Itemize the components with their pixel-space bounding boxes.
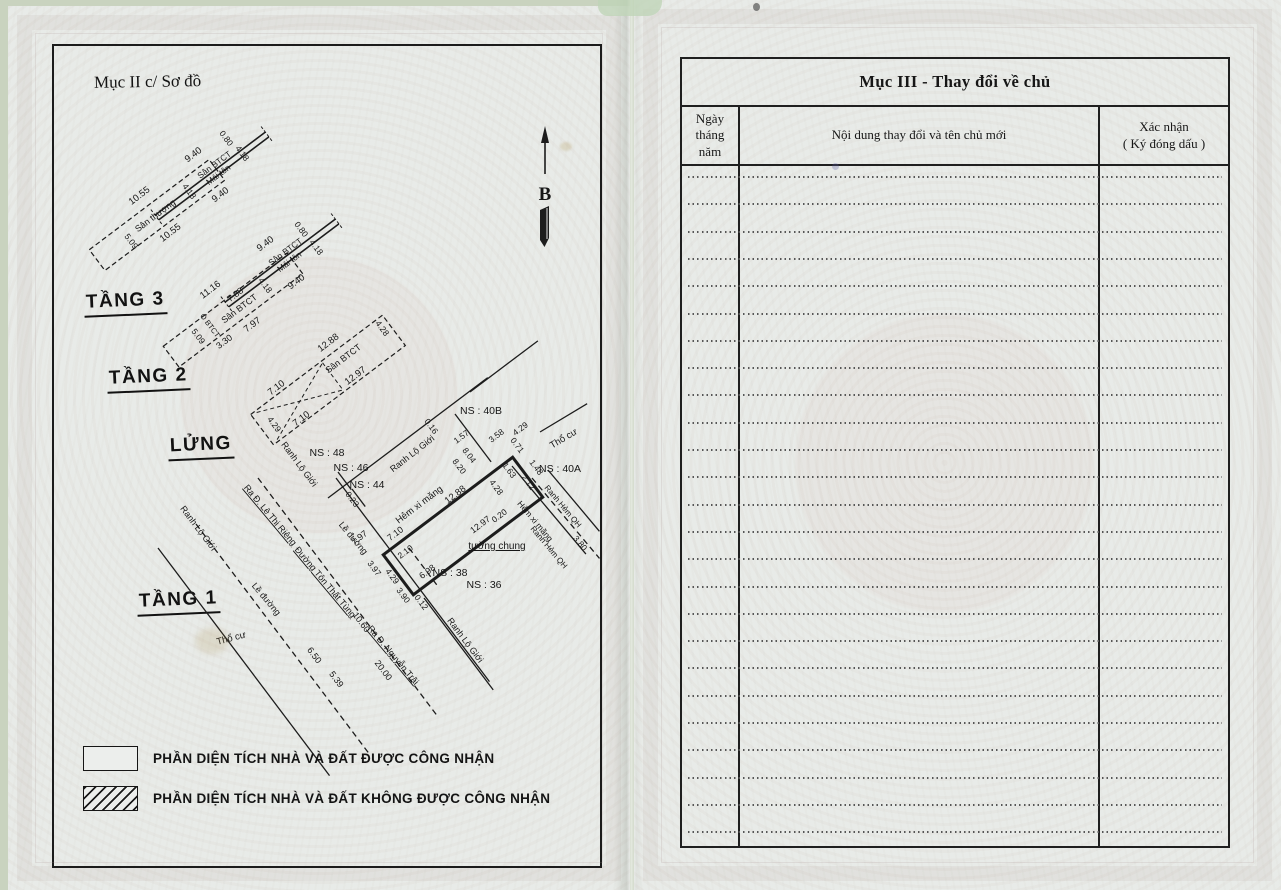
measurement-label: 4.29 (383, 567, 401, 586)
column-separator (738, 166, 740, 846)
measurement-label: 5.39 (327, 669, 346, 689)
dotted-entry-line (688, 722, 1222, 724)
measurement-label: 3.80 (571, 534, 589, 553)
dotted-entry-line (688, 203, 1222, 205)
owner-change-table: Mục III - Thay đổi về chủ Ngày tháng năm… (680, 57, 1230, 848)
measurement-label: 9.40 (286, 272, 307, 292)
measurement-label: 4.28 (487, 478, 505, 497)
page-right-owner-changes: Mục III - Thay đổi về chủ Ngày tháng năm… (634, 0, 1281, 890)
feature-label: Ranh Hẻm QH (543, 483, 584, 529)
measurement-label: 3.58 (487, 426, 506, 444)
cement-alley-line (532, 478, 599, 558)
dotted-entry-line (688, 340, 1222, 342)
measurement-label: 12.97 (468, 514, 492, 536)
measurement-label: 11.16 (198, 279, 223, 302)
dotted-entry-line (688, 176, 1222, 178)
dotted-entry-line (688, 804, 1222, 806)
feature-label: Ra Đ. Nguyễn Trãi (366, 624, 421, 687)
measurement-label: 7.97 (242, 315, 263, 335)
measurement-label: 0.71 (508, 436, 526, 455)
dotted-entry-line (688, 695, 1222, 697)
legend-item-recognized: PHẦN DIỆN TÍCH NHÀ VÀ ĐẤT ĐƯỢC CÔNG NHẬN (83, 746, 494, 771)
measurement-label: 8.20 (450, 457, 468, 476)
ns40b-frontage-line (470, 341, 538, 392)
measurement-label: 6.50 (305, 645, 324, 665)
dotted-entry-line (688, 667, 1222, 669)
house-number-label: NS : 48 (309, 447, 344, 459)
measurement-label: 4.28 (373, 319, 391, 338)
legend-item-not-recognized: PHẦN DIỆN TÍCH NHÀ VÀ ĐẤT KHÔNG ĐƯỢC CÔN… (83, 786, 550, 811)
dotted-entry-line (688, 422, 1222, 424)
residential-leader (540, 404, 587, 432)
feature-label: Ra Đ. Lê Thị Riêng (242, 483, 299, 548)
measurement-label: 12.88 (316, 331, 342, 354)
measurement-label: 0.20 (490, 506, 509, 524)
page-left-diagram: Mục II c/ Sơ đồ B TẦNG 3 TẦNG 2 LỬNG TẦN… (8, 6, 630, 890)
column-header-confirm: Xác nhận ( Ký đóng dấu ) (1100, 107, 1228, 164)
measurement-label: 9.40 (183, 145, 204, 165)
measurement-label: 12.97 (343, 364, 369, 387)
feature-label: Hẻm xi măng (394, 484, 445, 526)
measurement-label: 5.09 (122, 232, 140, 251)
page-fold (614, 0, 642, 890)
measurement-label: 2.10 (396, 542, 415, 560)
dotted-entry-line (688, 777, 1222, 779)
legend-swatch-hatched (83, 786, 138, 811)
measurement-label: 9.40 (255, 234, 276, 254)
house-number-label: NS : 44 (349, 479, 384, 491)
photographed-certificate: Mục II c/ Sơ đồ B TẦNG 3 TẦNG 2 LỬNG TẦN… (0, 0, 1281, 890)
measurement-label: 4.29 (511, 419, 530, 437)
house-number-label: NS : 38 (432, 567, 467, 579)
road-boundary-line (424, 598, 493, 690)
dotted-entry-line (688, 504, 1222, 506)
house-number-label: NS : 40A (539, 463, 581, 475)
road-boundary-line (158, 548, 330, 776)
measurement-label: 0.16 (422, 417, 440, 436)
column-separator (1098, 166, 1100, 846)
dotted-entry-line (688, 231, 1222, 233)
measurement-label: 10.60 (351, 610, 373, 634)
dotted-entry-line (688, 613, 1222, 615)
measurement-label: 0.80 (217, 129, 235, 148)
legend-swatch-empty (83, 746, 138, 771)
house-number-label: NS : 36 (466, 579, 501, 591)
dotted-entry-line (688, 258, 1222, 260)
table-body (682, 166, 1228, 846)
measurement-label: 1.57 (452, 427, 471, 445)
measurement-label: 0.12 (412, 593, 430, 612)
dotted-entry-line (688, 640, 1222, 642)
dotted-entry-line (688, 831, 1222, 833)
measurement-label: 0.23 (343, 490, 361, 509)
feature-label: Ranh Lộ Giới (388, 433, 436, 474)
table-title: Mục III - Thay đổi về chủ (682, 59, 1228, 107)
dotted-entry-line (688, 367, 1222, 369)
measurement-label: 3.97 (365, 559, 383, 578)
feature-label: Ranh Lộ Giới (445, 616, 485, 665)
dotted-entry-line (688, 749, 1222, 751)
measurement-label: 5.09 (189, 327, 207, 346)
house-number-label: NS : 40B (460, 405, 502, 417)
measurement-label: 10.55 (127, 184, 153, 207)
measurement-label: 7.10 (291, 409, 312, 429)
table-header-row: Ngày tháng năm Nội dung thay đổi và tên … (682, 107, 1228, 166)
legend-label: PHẦN DIỆN TÍCH NHÀ VÀ ĐẤT KHÔNG ĐƯỢC CÔN… (153, 791, 550, 806)
feature-label: Đường Tôn Thất Tùng (293, 545, 358, 620)
dotted-entry-line (688, 313, 1222, 315)
feature-label: Lề đường (250, 581, 283, 618)
feature-label: tường chung (468, 541, 525, 552)
legend-label: PHẦN DIỆN TÍCH NHÀ VÀ ĐẤT ĐƯỢC CÔNG NHẬN (153, 751, 494, 766)
dotted-entry-line (688, 449, 1222, 451)
dotted-entry-line (688, 394, 1222, 396)
feature-label: Thổ cư (548, 426, 580, 451)
dotted-entry-line (688, 586, 1222, 588)
dotted-entry-line (688, 476, 1222, 478)
dotted-entry-line (688, 558, 1222, 560)
measurement-label: 0.80 (292, 220, 310, 239)
measurement-label: 12.88 (443, 483, 469, 506)
measurement-label: 4.18 (256, 276, 274, 295)
dotted-entry-line (688, 285, 1222, 287)
measurement-label: 4.29 (265, 415, 283, 434)
feature-label: Ranh Lộ Giới (178, 504, 218, 553)
measurement-label: 20.00 (373, 658, 395, 682)
column-header-content: Nội dung thay đổi và tên chủ mới (740, 107, 1100, 164)
cover-edge (598, 0, 662, 16)
measurement-label: 9.40 (210, 185, 231, 205)
house-number-label: NS : 46 (333, 462, 368, 474)
measurement-label: 4.18 (307, 238, 325, 257)
dotted-entry-line (688, 531, 1222, 533)
measurement-label: 10.55 (158, 221, 184, 244)
column-header-date: Ngày tháng năm (682, 107, 740, 164)
